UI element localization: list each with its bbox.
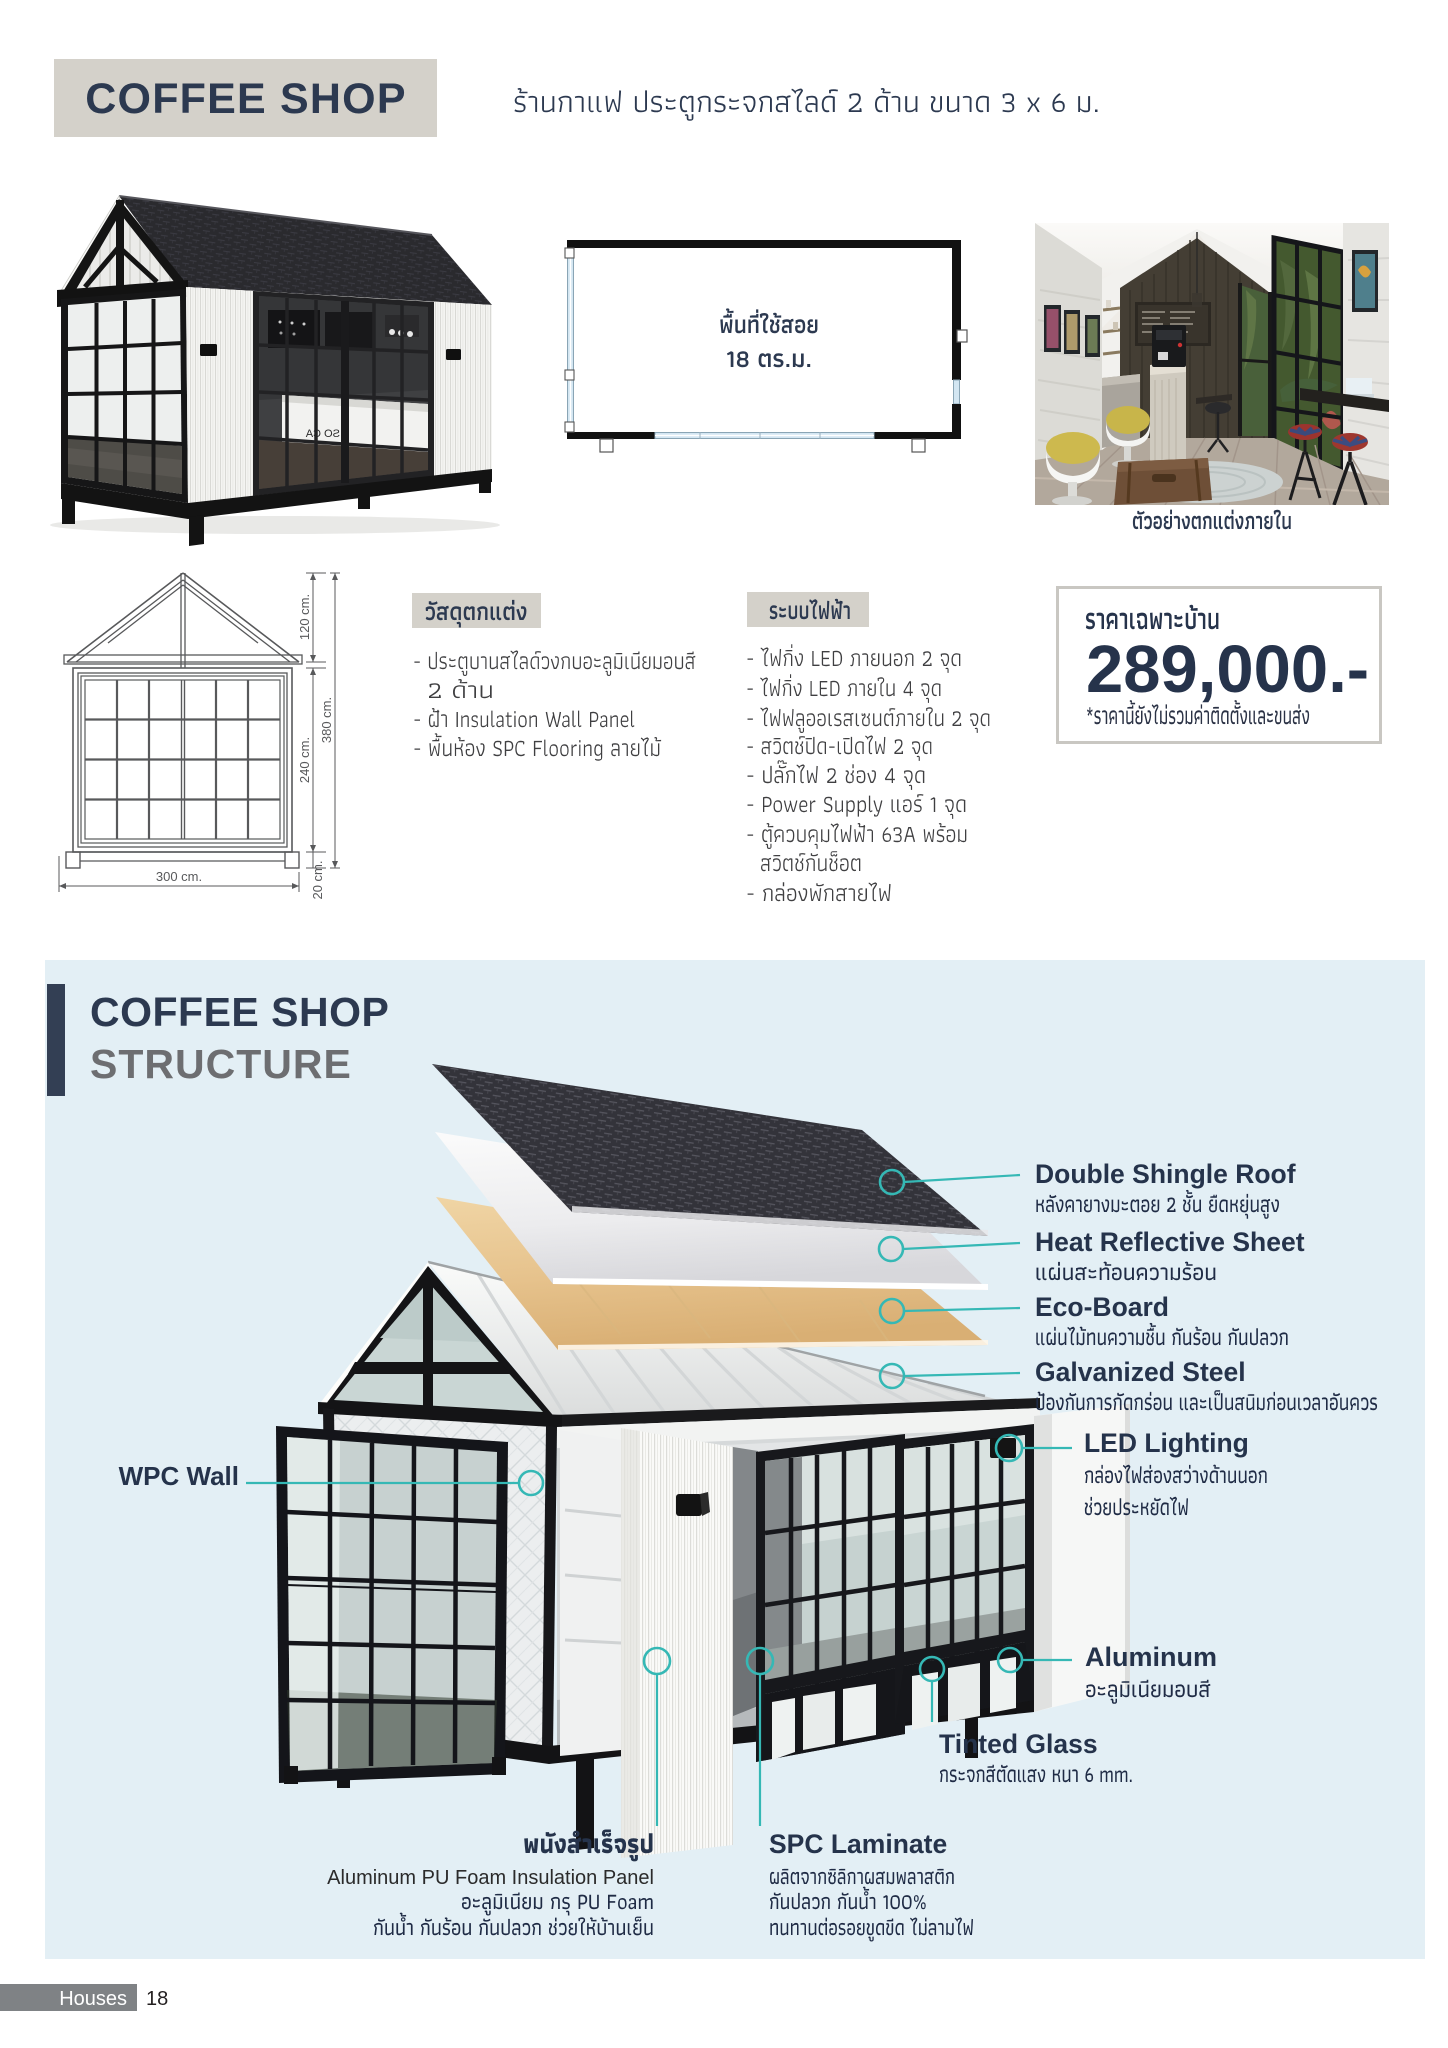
svg-text:20 cm.: 20 cm. (310, 860, 325, 899)
svg-text:Eco-Board: Eco-Board (1035, 1292, 1169, 1322)
svg-text:120 cm.: 120 cm. (297, 594, 312, 640)
svg-text:COFFEE SHOP: COFFEE SHOP (90, 989, 389, 1035)
svg-text:Tinted Glass: Tinted Glass (939, 1729, 1098, 1759)
svg-text:240 cm.: 240 cm. (297, 737, 312, 783)
svg-text:18: 18 (146, 1988, 168, 2010)
svg-text:Double Shingle Roof: Double Shingle Roof (1035, 1159, 1296, 1189)
svg-text:LED Lighting: LED Lighting (1084, 1428, 1249, 1458)
svg-text:WPC Wall: WPC Wall (119, 1461, 239, 1491)
svg-text:Galvanized Steel: Galvanized Steel (1035, 1357, 1246, 1387)
svg-text:380 cm.: 380 cm. (319, 697, 334, 743)
svg-text:SO CA: SO CA (305, 428, 340, 440)
svg-text:Aluminum PU Foam Insulation Pa: Aluminum PU Foam Insulation Panel (327, 1867, 654, 1889)
svg-text:Aluminum: Aluminum (1085, 1642, 1217, 1672)
svg-text:COFFEE SHOP: COFFEE SHOP (85, 75, 406, 123)
svg-text:Houses: Houses (59, 1988, 127, 2010)
svg-text:300 cm.: 300 cm. (156, 869, 202, 884)
svg-text:SPC Laminate: SPC Laminate (769, 1829, 947, 1859)
svg-text:289,000.-: 289,000.- (1086, 632, 1369, 707)
svg-text:Heat Reflective Sheet: Heat Reflective Sheet (1035, 1227, 1305, 1257)
svg-text:STRUCTURE: STRUCTURE (90, 1041, 352, 1087)
